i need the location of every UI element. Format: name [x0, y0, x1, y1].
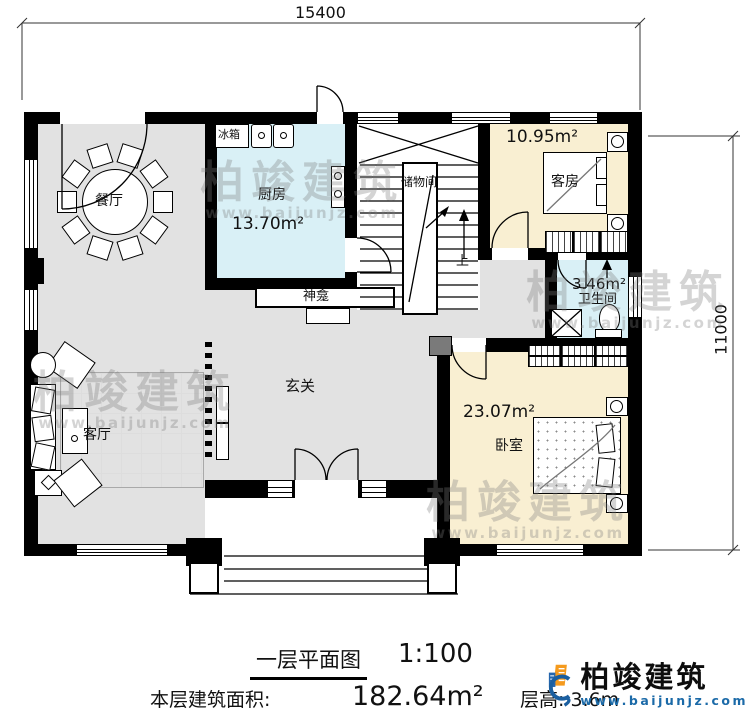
wall-entry-d — [386, 480, 437, 498]
wall-right — [628, 112, 642, 556]
door-stair-back — [317, 86, 343, 112]
wardrobe-cell — [528, 345, 561, 356]
lamp-icon — [611, 217, 624, 230]
wardrobe-cell — [595, 345, 628, 356]
label-dining: 餐厅 — [95, 194, 123, 209]
brand-logo-icon — [543, 650, 574, 720]
guest-pillow — [596, 157, 607, 179]
window-top-2 — [452, 112, 510, 124]
label-fridge: 冰箱 — [218, 129, 240, 141]
window-left-2 — [24, 290, 38, 330]
tv-media-strip — [205, 342, 212, 462]
toilet-tank — [595, 329, 622, 338]
drawing-title: 一层平面图 — [250, 644, 367, 680]
wall-kitchen-right-upper — [345, 124, 357, 238]
wardrobe-cell — [595, 356, 628, 367]
window-left-1 — [24, 160, 38, 248]
floor-area-label: 本层建筑面积: — [150, 690, 270, 711]
brand-name: 柏竣建筑 — [580, 662, 748, 694]
label-guest: 客房 — [551, 175, 579, 190]
label-bathroom-area: 3.46m² — [572, 276, 626, 293]
wall-left-pier — [24, 258, 44, 284]
sofa-cushion — [31, 386, 55, 414]
label-stairs-up: 上 — [456, 255, 469, 269]
wardrobe-cell — [528, 356, 561, 367]
wall-guest-bottom-a — [478, 248, 492, 260]
dimension-height: 11000 — [712, 295, 731, 365]
bedroom-pillow — [596, 423, 616, 454]
floor-plan-canvas: 15400 11000 餐厅 厨房 13.70m² 冰箱 储物间 客房 10.9… — [0, 0, 750, 727]
burner-icon — [334, 172, 342, 180]
dining-chair — [153, 191, 173, 213]
side-table-round — [30, 352, 56, 378]
window-bathroom-right — [628, 277, 642, 317]
wardrobe-cell — [561, 356, 594, 367]
window-bedroom-bottom — [497, 544, 583, 556]
wall-stairs-guest — [478, 124, 490, 248]
label-bathroom: 卫生间 — [578, 293, 617, 307]
label-bedroom-area: 23.07m² — [463, 403, 535, 422]
wall-entry-b — [292, 480, 295, 498]
label-guest-area: 10.95m² — [506, 128, 578, 147]
burner-icon — [334, 190, 342, 198]
porch-column-right — [427, 562, 457, 594]
wall-kitchen-left — [205, 124, 217, 290]
porch-column-left — [189, 562, 219, 594]
bedroom-corner-pier — [429, 336, 452, 356]
lamp-icon — [610, 497, 623, 510]
shrine-stand — [306, 308, 350, 324]
drawing-scale: 1:100 — [398, 640, 473, 669]
guest-wardrobe — [545, 231, 628, 253]
window-living-bottom — [77, 544, 167, 556]
tv-cabinet-divider — [217, 422, 228, 424]
porch-steps — [190, 556, 458, 594]
dining-chair — [57, 191, 77, 213]
coffee-table-detail — [71, 435, 78, 442]
dimension-width: 15400 — [295, 3, 346, 22]
label-living: 客厅 — [83, 428, 111, 443]
sofa-cushion — [31, 415, 54, 443]
sink-drain-icon — [258, 132, 265, 139]
label-kitchen-area: 13.70m² — [232, 215, 304, 234]
label-shrine: 神龛 — [303, 290, 329, 304]
wardrobe-cell — [600, 231, 628, 253]
floor-area-value: 182.64m² — [352, 682, 484, 712]
window-top-3 — [550, 112, 597, 124]
corridor-floor-a — [480, 260, 545, 338]
label-storage: 储物间 — [401, 176, 437, 189]
wall-bedroom-left — [437, 352, 450, 556]
brand-logo: 柏竣建筑 www.baijunjz.com — [543, 650, 748, 720]
wardrobe-cell — [561, 345, 594, 356]
door-opening-stair-back — [317, 112, 343, 124]
brand-website: www.baijunjz.com — [580, 693, 748, 708]
window-entry-left — [268, 480, 292, 498]
corridor-floor-b — [437, 310, 480, 338]
wardrobe-cell — [545, 231, 573, 253]
window-entry-right — [362, 480, 386, 498]
label-bedroom: 卧室 — [495, 439, 523, 454]
lamp-icon — [611, 135, 624, 148]
label-hall: 玄关 — [285, 378, 315, 395]
sink-drain-icon — [280, 132, 287, 139]
guest-pillow — [596, 184, 607, 206]
door-opening-dining-top — [60, 112, 145, 124]
window-top-1 — [358, 112, 398, 124]
lamp-icon — [610, 400, 623, 413]
label-kitchen: 厨房 — [258, 188, 286, 203]
toilet-bowl — [599, 304, 620, 332]
shower — [551, 309, 582, 337]
bedroom-pillow — [596, 457, 616, 488]
dim-line-top — [17, 18, 645, 110]
logo-swoosh-tail — [565, 697, 569, 705]
bedroom-wardrobe — [528, 345, 628, 367]
wall-entry-a — [205, 480, 268, 498]
wardrobe-cell — [573, 231, 601, 253]
